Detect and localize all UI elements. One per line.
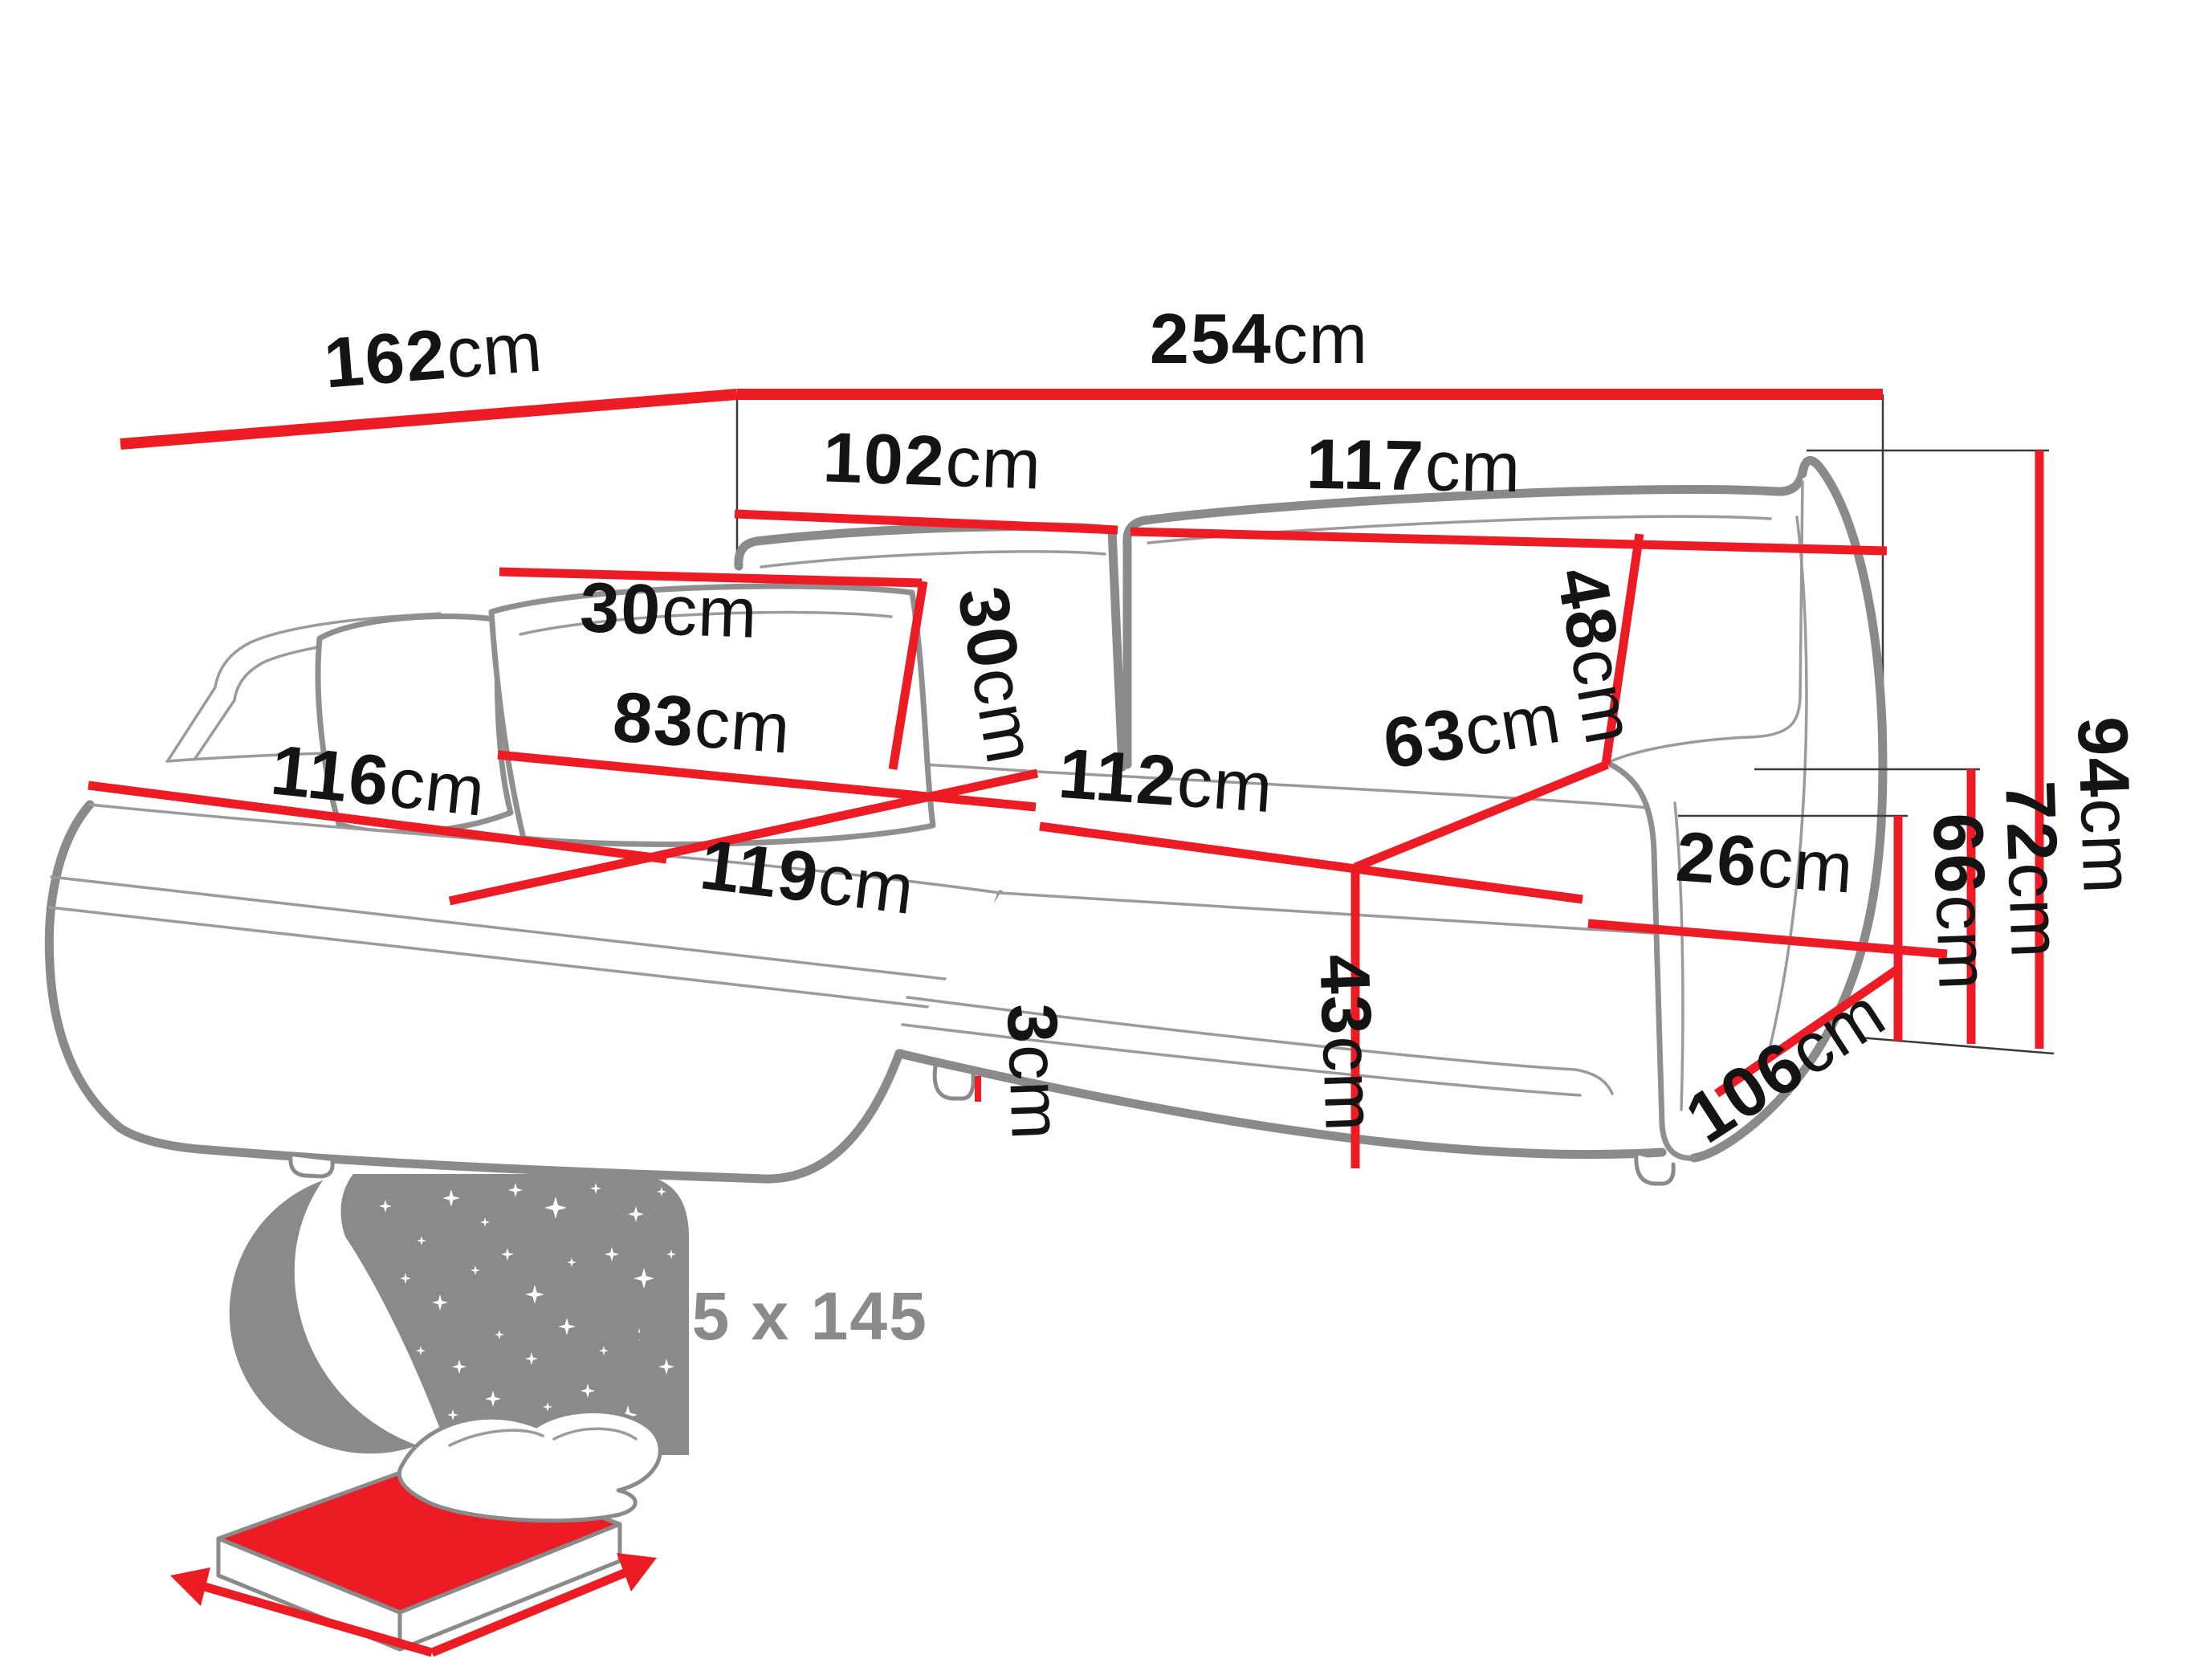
bed-width-arrowhead-icon bbox=[170, 1567, 210, 1606]
dim-line-side-depth-162 bbox=[120, 394, 737, 444]
dim-label-seat-width: 112cm bbox=[1056, 733, 1276, 827]
dim-label-right-backrest: 117cm bbox=[1306, 424, 1522, 507]
dim-label-chaise-seat-width: 83cm bbox=[610, 676, 793, 768]
dim-label-side-depth: 162cm bbox=[321, 307, 545, 403]
dim-label-back-height: 72cm bbox=[1990, 780, 2076, 960]
sofa-dimension-diagram: 162cm 254cm 102cm 117cm 30cm 30cm 48cm 8… bbox=[0, 0, 2212, 1659]
dim-label-leg-height: 3cm bbox=[992, 1002, 1077, 1142]
dim-label-total-height: 94cm bbox=[2063, 715, 2149, 896]
bed-duvet bbox=[399, 1411, 660, 1520]
sleeping-function-icon: 195 x 145 bbox=[170, 1174, 928, 1653]
dim-label-armrest-height: 66cm bbox=[1918, 812, 2004, 993]
dim-label-seat-height: 43cm bbox=[1305, 953, 1391, 1134]
dim-label-pillow-width: 30cm bbox=[579, 567, 760, 653]
sofa-leg-right bbox=[1636, 1155, 1673, 1184]
sleeping-area-label: 195 x 145 bbox=[613, 1278, 928, 1354]
dim-label-total-width: 254cm bbox=[1150, 299, 1368, 378]
dim-label-armrest-width: 26cm bbox=[1673, 816, 1856, 907]
dim-label-left-backrest: 102cm bbox=[821, 417, 1042, 503]
diagram-canvas: 162cm 254cm 102cm 117cm 30cm 30cm 48cm 8… bbox=[0, 0, 2212, 1659]
